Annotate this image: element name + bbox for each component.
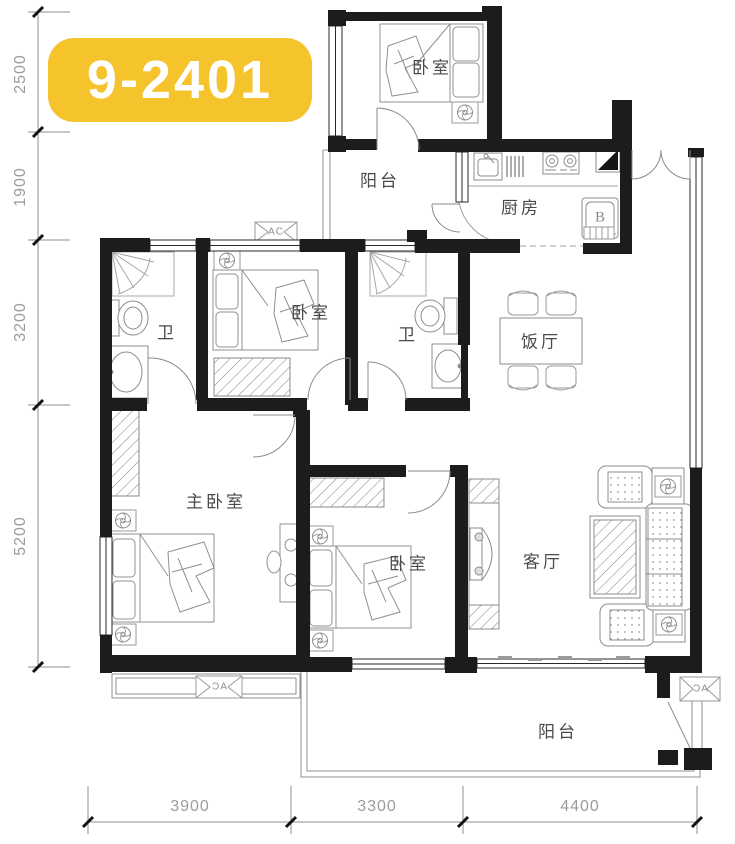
- shower-icon: [370, 252, 426, 296]
- coffee-table-icon: [590, 516, 640, 598]
- toilet-icon: [415, 298, 457, 334]
- tv-cabinet-icon: [469, 479, 499, 629]
- shower-icon: [112, 252, 174, 296]
- floorplan-drawing: [0, 0, 735, 844]
- wardrobe-icon: [309, 478, 384, 507]
- basin-icon: [432, 344, 466, 388]
- unit-number-text: 9-2401: [87, 49, 273, 111]
- fan-icon: [110, 510, 136, 531]
- room-label-balcony-top: 阳台: [360, 167, 400, 192]
- ac-label-top: AC: [268, 227, 284, 238]
- fan-icon: [307, 526, 333, 547]
- fan-icon: [656, 614, 682, 635]
- ac-unit-box: [196, 676, 720, 701]
- room-label-bath-2: 卫: [398, 321, 418, 346]
- chair-icon: [546, 366, 576, 390]
- dim-bottom-4400: 4400: [560, 798, 600, 816]
- dim-bottom-3300: 3300: [357, 798, 397, 816]
- room-label-bath-1: 卫: [157, 319, 177, 344]
- dim-left-2500: 2500: [12, 54, 30, 94]
- fan-icon: [110, 624, 136, 645]
- floorplan-page: 9-2401 2500 1900 3200 5200 3900 3300 440…: [0, 0, 735, 844]
- chair-icon: [546, 291, 576, 315]
- dish-rack-icon: [507, 156, 523, 177]
- room-label-master-bedroom: 主卧室: [186, 488, 246, 513]
- corner-basin-icon: [596, 150, 620, 172]
- unit-number-badge: 9-2401: [48, 38, 312, 122]
- room-label-kitchen: 厨房: [501, 194, 541, 219]
- fan-icon: [214, 250, 240, 271]
- fan-icon: [452, 102, 478, 123]
- bed-master-icon: [110, 534, 214, 622]
- room-label-dining: 饭厅: [521, 328, 561, 353]
- fan-icon: [307, 630, 333, 651]
- fridge-label: B: [595, 210, 605, 227]
- chair-icon: [508, 366, 538, 390]
- ac-label-right: AC: [692, 684, 708, 695]
- room-label-living: 客厅: [523, 548, 563, 573]
- room-label-bedroom-top: 卧室: [412, 54, 452, 79]
- room-label-bedroom-mid: 卧室: [291, 299, 331, 324]
- chair-icon: [508, 291, 538, 315]
- entry-bench-icon: [584, 227, 614, 239]
- toilet-icon: [106, 300, 148, 336]
- room-label-bedroom-bottom: 卧室: [389, 550, 429, 575]
- dim-left-5200: 5200: [12, 516, 30, 556]
- kitchen-sink-icon: [474, 153, 502, 180]
- wardrobe-icon: [214, 358, 290, 396]
- dim-left-1900: 1900: [12, 167, 30, 207]
- dim-left-3200: 3200: [12, 302, 30, 342]
- dim-bottom-3900: 3900: [170, 798, 210, 816]
- stove-icon: [543, 152, 579, 174]
- fan-icon: [655, 476, 681, 497]
- ac-label-left: AC: [211, 682, 227, 693]
- room-label-balcony-bottom: 阳台: [538, 718, 578, 743]
